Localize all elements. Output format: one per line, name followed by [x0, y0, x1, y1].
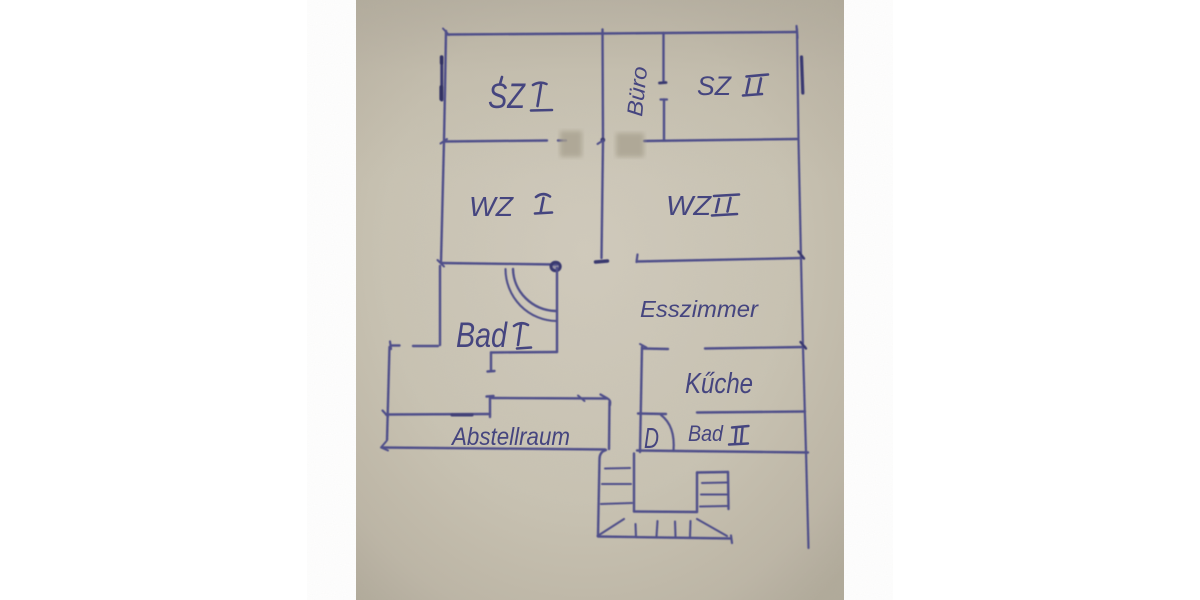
svg-text:Kűche: Kűche	[685, 368, 753, 400]
svg-text:Bad: Bad	[688, 421, 724, 446]
svg-text:Büro: Büro	[622, 65, 652, 117]
svg-text:D: D	[644, 423, 659, 455]
svg-text:Bad: Bad	[456, 316, 508, 355]
svg-text:Abstellraum: Abstellraum	[450, 423, 570, 451]
svg-text:SZ: SZ	[488, 77, 526, 116]
svg-text:SZ: SZ	[697, 71, 732, 101]
svg-text:WZ: WZ	[469, 191, 514, 222]
svg-text:WZ: WZ	[666, 190, 712, 221]
svg-text:Esszimmer: Esszimmer	[640, 296, 759, 322]
